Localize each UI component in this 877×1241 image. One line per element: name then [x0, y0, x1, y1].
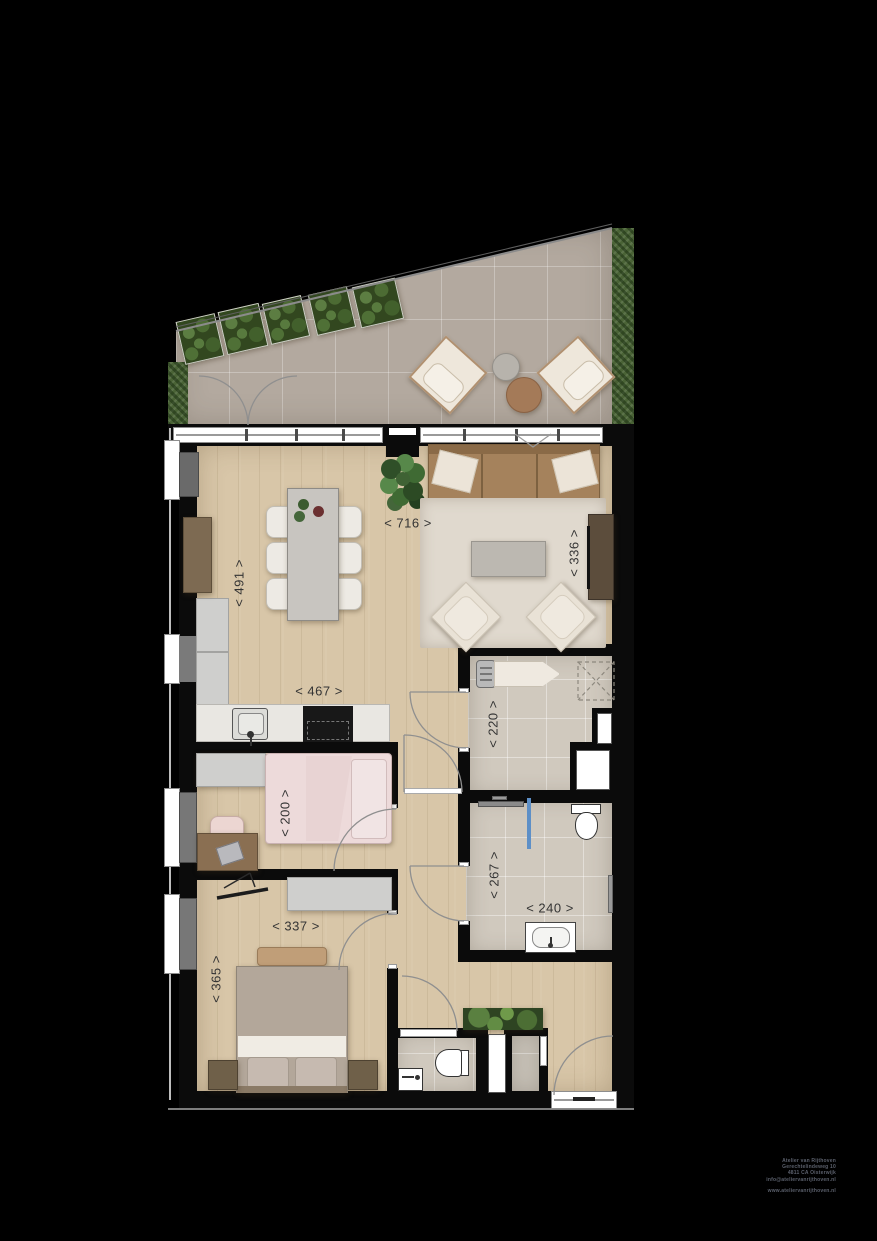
window-left-bedroom2 — [164, 894, 180, 974]
iron-station — [476, 660, 496, 688]
bedroom2-wardrobe — [287, 877, 392, 911]
terrace-side-table-brown — [506, 377, 542, 413]
architect-contact-block: Atelier van Rijthoven Gerechtelindeweg 1… — [766, 1158, 836, 1194]
bed-blanket-fold — [306, 756, 352, 841]
bed-foot-frame — [237, 1086, 347, 1093]
kitchen-sink — [232, 708, 268, 740]
shower-control — [492, 796, 507, 800]
wall-wc-right — [476, 1028, 488, 1093]
wall-hall-right-a — [458, 653, 470, 692]
radiator-bedroom2 — [179, 898, 197, 970]
kitchen-oven-dashed — [307, 721, 349, 740]
nightstand-left — [208, 1060, 238, 1090]
sofa-pillow-left — [431, 450, 478, 494]
dim-bathroom-width: < 240 > — [526, 901, 574, 916]
niche-door-opening — [540, 1036, 547, 1066]
wc-hand-basin — [398, 1068, 423, 1091]
terrace-planter-2 — [218, 303, 269, 355]
kitchen-tall-cabinet-1 — [196, 598, 229, 652]
bed-pillow-right — [295, 1057, 337, 1089]
window-mullion — [557, 429, 560, 441]
bedroom2-bench — [257, 947, 327, 966]
pier-window-pass — [389, 428, 416, 435]
sill-kitchen — [179, 636, 197, 682]
terrace-side-table-grey — [492, 353, 520, 381]
table-plant-3 — [294, 511, 305, 522]
dim-bedroom2-depth: < 365 > — [209, 955, 224, 1003]
entry-niche-floor — [510, 1032, 541, 1093]
dim-kitchen-width: < 467 > — [295, 684, 343, 699]
dim-bedroom2-width: < 337 > — [272, 919, 320, 934]
wall-kitchen-bedroom1 — [196, 742, 398, 753]
door-jamb — [459, 862, 469, 867]
hallway-planter — [463, 1008, 543, 1030]
window-mullion — [295, 429, 298, 441]
wc-toilet-bowl — [435, 1049, 462, 1077]
wall-right — [612, 424, 634, 1100]
nightstand-right — [348, 1060, 378, 1090]
towel-rail — [608, 875, 613, 913]
window-mullion — [245, 429, 248, 441]
terrace-hedge-right — [612, 228, 634, 426]
dim-laundry-width: < 220 > — [486, 700, 501, 748]
facade-line-left — [169, 428, 171, 1100]
bedroom1-wardrobe — [196, 753, 266, 787]
shaft-entry — [488, 1034, 506, 1093]
dim-living-depth: < 491 > — [232, 559, 247, 607]
wall-hall-right-b — [458, 748, 470, 866]
toilet-bowl-bathroom — [575, 812, 598, 840]
dim-bathroom-depth: < 267 > — [487, 851, 502, 899]
coffee-table — [471, 541, 546, 577]
living-plant — [396, 472, 410, 486]
desk — [197, 833, 258, 871]
bedroom2-bed — [236, 966, 348, 1093]
door-jamb — [459, 747, 469, 752]
door-jamb — [459, 688, 469, 693]
contact-email: info@ateliervanrijthoven.nl — [766, 1177, 836, 1183]
door-jamb — [388, 964, 397, 969]
window-mullion — [463, 429, 466, 441]
door-jamb — [459, 920, 469, 925]
terrace-planter-1 — [176, 313, 225, 365]
shaft-laundry-small — [597, 713, 612, 744]
contact-website: www.ateliervanrijthoven.nl — [766, 1188, 836, 1194]
table-plant-1 — [298, 499, 309, 510]
dim-lounge-width: < 336 > — [567, 529, 582, 577]
hall-threshold — [404, 788, 462, 794]
kitchen-tall-cabinet-2 — [196, 652, 229, 706]
bed-sheet-fold — [238, 1036, 346, 1057]
window-left-bedroom1 — [164, 788, 180, 867]
tv-cabinet — [588, 514, 614, 600]
bed-pillow — [351, 759, 387, 839]
window-glazing-line-left — [176, 434, 380, 436]
terrace-hedge-left — [168, 362, 188, 425]
shower-glass-screen — [527, 798, 531, 849]
laptop — [216, 841, 245, 866]
sofa-pillow-right — [551, 450, 598, 494]
window-left-kitchen — [164, 634, 180, 684]
window-left-living — [164, 440, 180, 500]
bathroom-sink — [525, 922, 576, 953]
window-mullion — [342, 429, 345, 441]
window-glazing-line-right — [423, 434, 600, 436]
shower-rail — [478, 801, 524, 807]
radiator-living — [179, 452, 199, 497]
radiator-bedroom1 — [179, 792, 197, 863]
bed-pillow-left — [247, 1057, 289, 1089]
kitchen-counter — [196, 704, 390, 742]
entrance-door-handle — [573, 1097, 595, 1101]
table-plant-2 — [313, 506, 324, 517]
dim-bedroom1-width: < 200 > — [278, 789, 293, 837]
dim-living-width: < 716 > — [384, 516, 432, 531]
wc-door-opening — [400, 1029, 457, 1037]
sideboard — [183, 517, 212, 593]
floor-plan-image: < 716 > < 491 > < 336 > < 467 > < 220 > … — [0, 0, 877, 1241]
tv-screen — [587, 526, 590, 589]
sink-faucet-stem — [250, 737, 253, 746]
shaft-laundry-large — [576, 750, 610, 790]
window-mullion — [515, 429, 518, 441]
